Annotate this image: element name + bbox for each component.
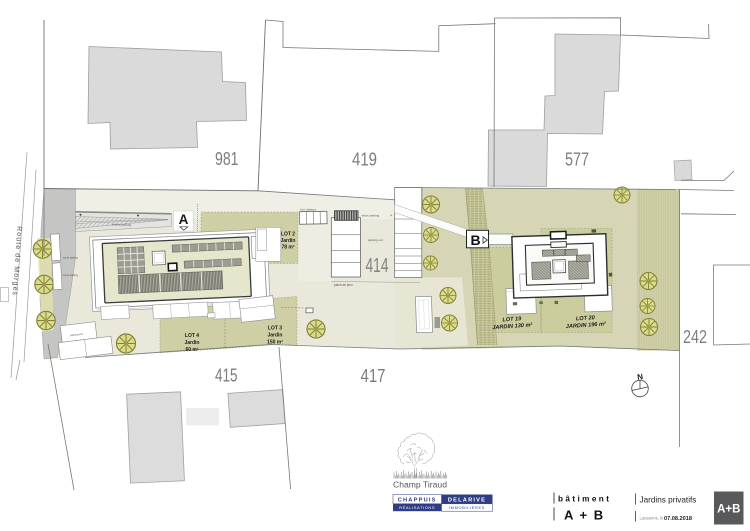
svg-text:A + B: A + B: [564, 508, 605, 523]
svg-text:LOT 2: LOT 2: [281, 232, 295, 238]
svg-text:entrée parking: entrée parking: [112, 223, 132, 227]
svg-text:parking ext.: parking ext.: [368, 238, 384, 242]
svg-text:CHAPPUIS: CHAPPUIS: [398, 498, 437, 504]
svg-text:414: 414: [366, 255, 389, 277]
svg-text:Jardin: Jardin: [184, 340, 199, 346]
svg-text:A: A: [179, 212, 189, 227]
svg-text:07.08.2018: 07.08.2018: [664, 516, 692, 522]
svg-text:78 m²: 78 m²: [281, 245, 294, 251]
svg-text:bâtiment: bâtiment: [558, 495, 611, 504]
svg-text:Jardins privatifs: Jardins privatifs: [640, 495, 697, 504]
svg-text:Route de Morges: Route de Morges: [11, 226, 23, 297]
svg-text:242: 242: [683, 327, 707, 347]
svg-text:4 pl. visiteurs: 4 pl. visiteurs: [300, 208, 317, 212]
svg-text:Lausanne, le: Lausanne, le: [640, 516, 665, 521]
svg-text:419: 419: [352, 149, 377, 170]
svg-text:Jardin: Jardin: [267, 333, 282, 339]
svg-text:place de jeux: place de jeux: [334, 283, 353, 287]
svg-text:accès parking: accès parking: [63, 257, 78, 260]
svg-text:Jardin: Jardin: [280, 238, 295, 244]
svg-text:60 m²: 60 m²: [185, 347, 198, 353]
svg-text:N: N: [637, 372, 644, 382]
svg-text:Champ Tiraud: Champ Tiraud: [393, 480, 447, 490]
svg-text:577: 577: [565, 149, 589, 170]
svg-text:vélos parking: vélos parking: [362, 214, 380, 218]
svg-text:A+B: A+B: [717, 504, 740, 516]
svg-text:LOT 4: LOT 4: [185, 333, 199, 339]
svg-text:150 m²: 150 m²: [267, 340, 283, 346]
svg-text:417: 417: [361, 365, 386, 386]
svg-text:415: 415: [215, 366, 238, 386]
svg-text:B: B: [470, 232, 480, 248]
svg-text:DELARIVE: DELARIVE: [448, 498, 486, 504]
svg-text:RÉALISATIONS: RÉALISATIONS: [399, 505, 435, 510]
svg-text:LOT 3: LOT 3: [268, 326, 282, 332]
svg-text:accès parking: accès parking: [63, 274, 78, 277]
svg-text:IMMOBILIÈRES: IMMOBILIÈRES: [449, 505, 485, 510]
svg-text:981: 981: [215, 149, 239, 169]
